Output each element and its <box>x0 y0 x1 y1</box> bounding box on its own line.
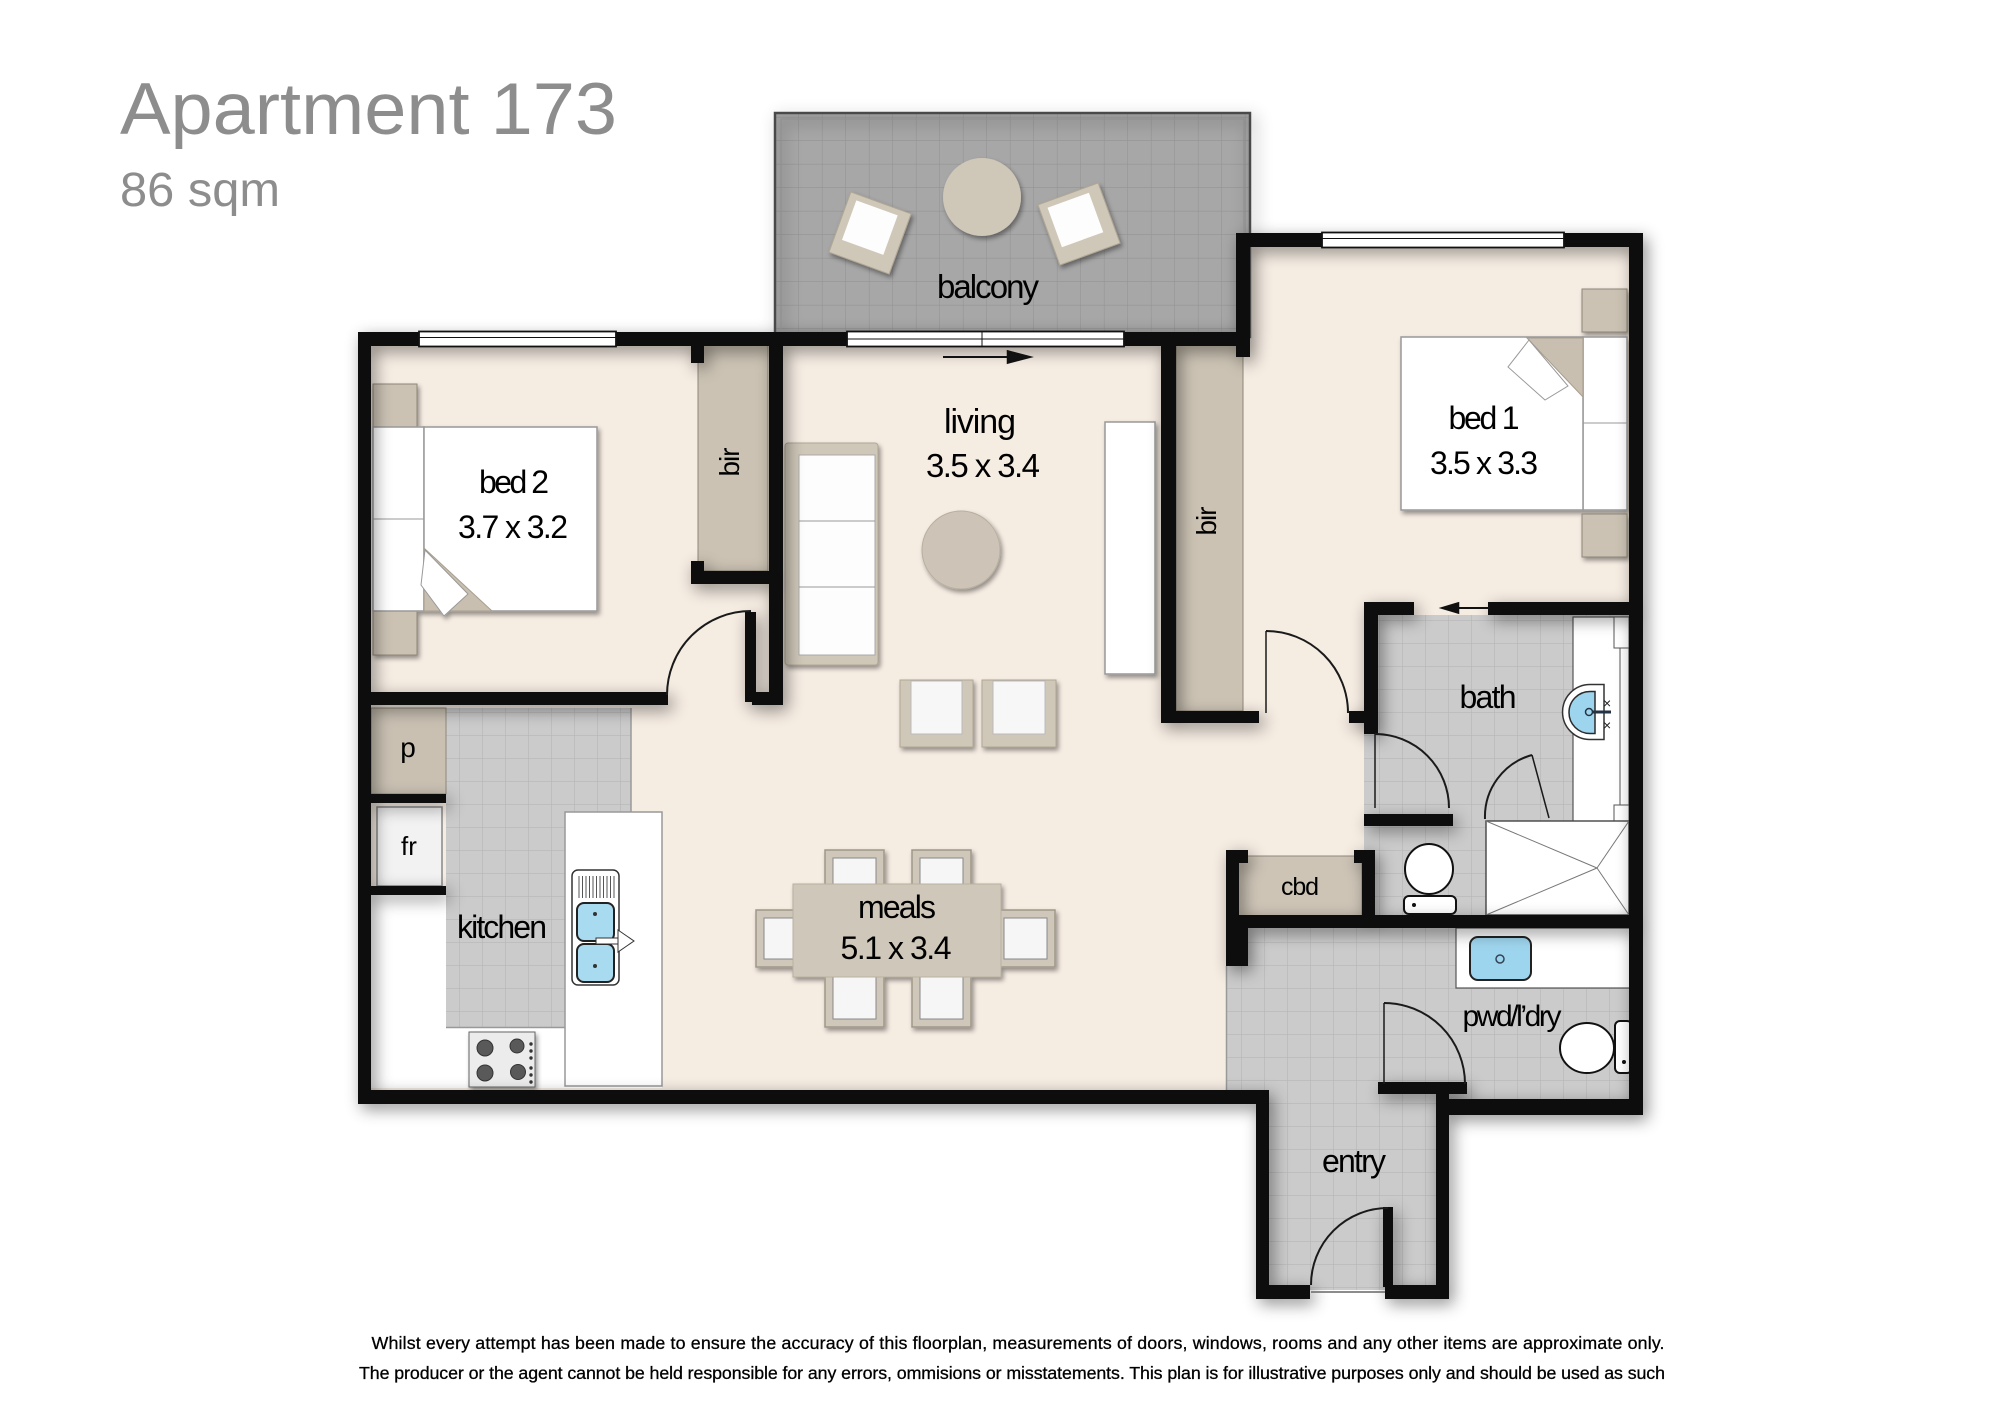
svg-text:living: living <box>944 403 1016 441</box>
svg-text:×: × <box>1603 717 1611 733</box>
svg-text:meals: meals <box>858 889 936 925</box>
svg-text:3.7 x 3.2: 3.7 x 3.2 <box>458 509 568 545</box>
svg-text:cbd: cbd <box>1281 873 1319 901</box>
svg-text:Apartment 173: Apartment 173 <box>120 69 617 150</box>
svg-text:kitchen: kitchen <box>457 909 547 945</box>
svg-text:The producer or the agent cann: The producer or the agent cannot be held… <box>359 1363 1665 1383</box>
svg-text:bath: bath <box>1460 679 1517 715</box>
svg-text:fr: fr <box>401 831 417 861</box>
svg-text:5.1 x 3.4: 5.1 x 3.4 <box>841 930 952 966</box>
svg-text:bed 2: bed 2 <box>479 464 549 500</box>
svg-text:entry: entry <box>1322 1143 1386 1179</box>
svg-text:pwd/l’dry: pwd/l’dry <box>1463 1000 1562 1033</box>
svg-text:86 sqm: 86 sqm <box>120 164 280 217</box>
svg-text:3.5 x 3.3: 3.5 x 3.3 <box>1430 445 1538 481</box>
svg-text:bed 1: bed 1 <box>1449 400 1520 436</box>
svg-text:×: × <box>1603 695 1611 711</box>
svg-text:Whilst every attempt has been: Whilst every attempt has been made to en… <box>372 1333 1665 1353</box>
svg-text:3.5 x 3.4: 3.5 x 3.4 <box>926 447 1040 484</box>
svg-text:bir: bir <box>714 448 745 477</box>
svg-text:p: p <box>400 732 416 763</box>
svg-text:bir: bir <box>1191 507 1222 536</box>
svg-text:balcony: balcony <box>937 268 1040 305</box>
